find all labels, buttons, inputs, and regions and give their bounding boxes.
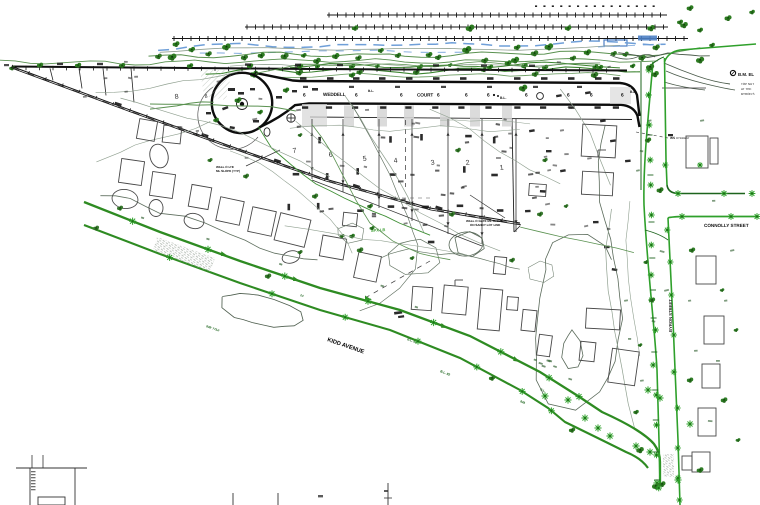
svg-text:6: 6 [567,93,570,99]
svg-text:B.L.: B.L. [630,90,636,94]
svg-text:CONNOLLY STREET: CONNOLLY STREET [704,223,749,228]
svg-text:6: 6 [303,93,306,99]
svg-text:6: 6 [400,93,403,99]
svg-text:6: 6 [525,93,528,99]
svg-text:WEDDELL: WEDDELL [323,92,346,97]
svg-text:ML SLOPE (TYP): ML SLOPE (TYP) [216,169,240,173]
svg-text:AT THE: AT THE [741,87,751,91]
svg-text:6: 6 [621,93,624,99]
svg-text:B.L.: B.L. [500,96,506,100]
svg-text:ON SANDY LOT LINE: ON SANDY LOT LINE [470,223,500,227]
svg-text:6: 6 [355,93,358,99]
svg-text:COURT: COURT [417,92,433,97]
svg-text:B.M. EL: B.M. EL [738,72,754,77]
svg-text:6: 6 [465,93,468,99]
svg-text:HYDRANT: HYDRANT [676,136,690,140]
svg-text:6: 6 [437,93,440,99]
svg-text:BYRON S: BYRON S [741,92,755,96]
svg-text:BYRON STREET: BYRON STREET [668,299,673,332]
svg-text:WS: WS [670,136,675,140]
svg-text:6: 6 [487,93,490,99]
svg-text:TOP NUT: TOP NUT [741,82,754,86]
svg-text:B.L.: B.L. [368,89,374,93]
